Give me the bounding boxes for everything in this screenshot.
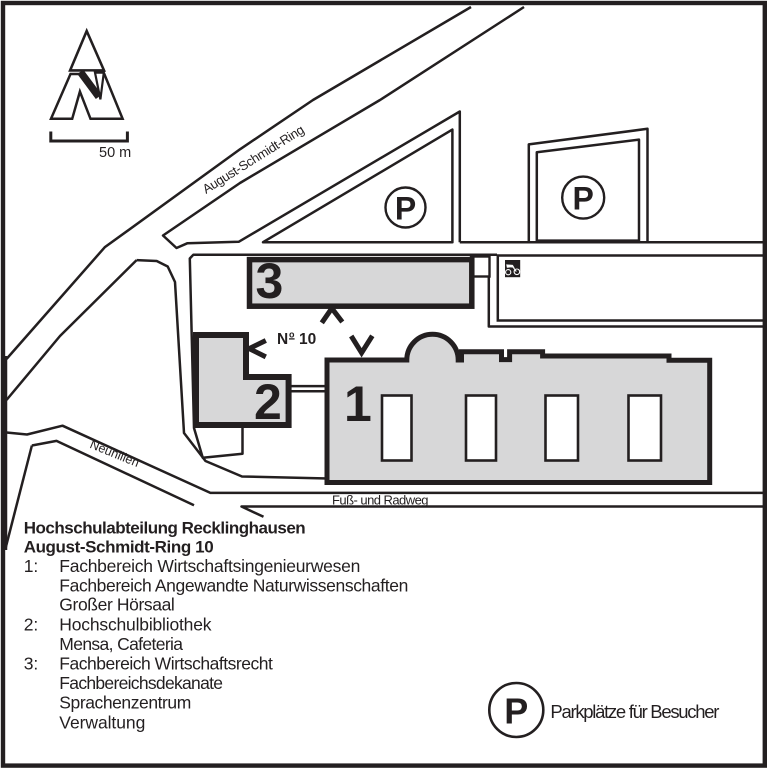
svg-text:1: 1 [344, 376, 372, 432]
svg-text:Fachbereich Wirtschaftsrecht: Fachbereich Wirtschaftsrecht [59, 653, 273, 673]
svg-text:50 m: 50 m [99, 145, 131, 161]
svg-text:1:: 1: [24, 556, 39, 576]
svg-text:Sprachenzentrum: Sprachenzentrum [59, 693, 191, 713]
svg-text:P: P [573, 181, 594, 217]
svg-text:2:: 2: [24, 614, 39, 634]
svg-text:3:: 3: [24, 653, 39, 673]
svg-text:Fachbereich Angewandte Naturwi: Fachbereich Angewandte Naturwissenschaft… [59, 576, 408, 596]
svg-text:Parkplätze für Besucher: Parkplätze für Besucher [550, 701, 719, 722]
svg-text:August-Schmidt-Ring 10: August-Schmidt-Ring 10 [24, 538, 214, 557]
svg-text:o: o [289, 329, 295, 339]
svg-text:Verwaltung: Verwaltung [59, 712, 145, 732]
svg-text:P: P [504, 691, 528, 732]
svg-text:Mensa, Cafeteria: Mensa, Cafeteria [59, 634, 183, 654]
svg-text:Großer Hörsaal: Großer Hörsaal [59, 595, 175, 615]
svg-text:10: 10 [299, 331, 316, 348]
svg-text:Fachbereich Wirtschaftsingenie: Fachbereich Wirtschaftsingenieurwesen [59, 556, 360, 576]
svg-text:N: N [277, 331, 288, 348]
svg-text:P: P [395, 191, 416, 227]
svg-text:Fuß- und Radweg: Fuß- und Radweg [332, 492, 429, 507]
svg-text:3: 3 [256, 253, 284, 309]
svg-text:Hochschulabteilung Recklinghau: Hochschulabteilung Recklinghausen [24, 519, 306, 538]
svg-text:Fachbereichsdekanate: Fachbereichsdekanate [59, 673, 223, 693]
svg-text:Hochschulbibliothek: Hochschulbibliothek [59, 614, 211, 634]
svg-text:2: 2 [254, 374, 282, 430]
